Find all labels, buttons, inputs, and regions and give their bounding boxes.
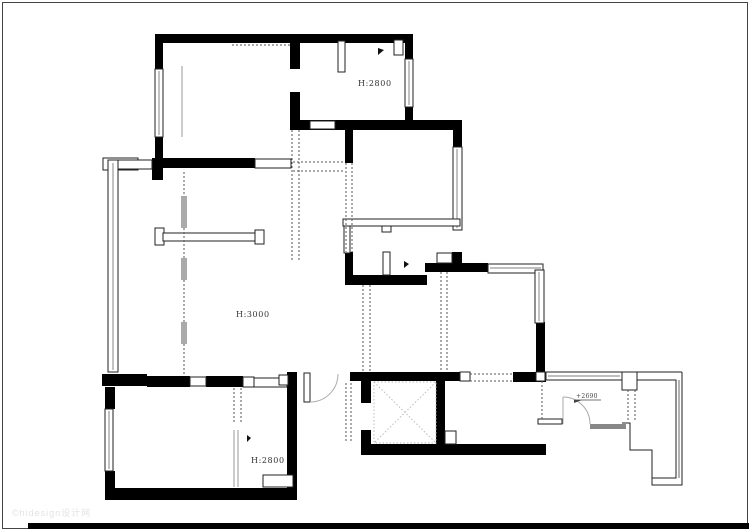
bed2-corner-jamb bbox=[394, 40, 403, 55]
wall-midroom-right bbox=[453, 130, 462, 147]
wall-top bbox=[155, 34, 413, 43]
wall-lift-bottom bbox=[361, 444, 546, 455]
bed3-cabinet bbox=[263, 475, 293, 487]
entry-door-leaf bbox=[304, 373, 310, 402]
wall-bed1-bottom bbox=[155, 158, 255, 168]
balcony-jamb bbox=[536, 372, 545, 381]
wall-bed3-left-b bbox=[105, 471, 115, 489]
railing-b bbox=[590, 424, 626, 429]
wall-living-right bbox=[536, 322, 545, 373]
wall-bed2-right-a bbox=[405, 43, 413, 59]
wall-bed2-right-b bbox=[405, 107, 413, 123]
closet-partition bbox=[163, 233, 262, 241]
wall-bed1-left-a bbox=[155, 43, 163, 69]
watermark-text: ©hidesign设计网 bbox=[12, 507, 91, 518]
balcony-level-text: +2690 bbox=[576, 393, 598, 400]
closet-jamb-right bbox=[255, 230, 264, 244]
title-block-edge bbox=[28, 523, 749, 529]
entry-jamb-left bbox=[279, 375, 288, 385]
opening-living-bottom bbox=[190, 377, 206, 386]
midroom-partition-notch bbox=[382, 226, 391, 232]
removed-seg-2 bbox=[181, 258, 187, 280]
wall-midroom-left bbox=[345, 130, 353, 163]
balcony-band-link bbox=[115, 160, 152, 169]
bed3-door-jamb bbox=[243, 377, 254, 387]
wall-bath-bottom bbox=[345, 275, 427, 285]
label-bed2-height: H:2800 bbox=[358, 79, 392, 88]
label-bed3-height: H:2800 bbox=[251, 456, 285, 465]
removed-seg-3 bbox=[181, 322, 187, 344]
bath-jamb-left bbox=[344, 226, 350, 253]
wall-bath-corner bbox=[452, 252, 462, 265]
window-bed2-bottom-inset bbox=[310, 121, 335, 129]
wall-bed2-left-a bbox=[290, 43, 300, 69]
bath-door-jamb bbox=[383, 252, 390, 275]
wall-living-bottom-b bbox=[147, 376, 190, 387]
label-living-height: H:3000 bbox=[236, 310, 270, 319]
lift-sill bbox=[445, 431, 456, 444]
wall-bed3-left-a bbox=[105, 387, 115, 409]
wall-living-bottom-a bbox=[102, 374, 147, 386]
opening-bed1-bottom bbox=[255, 159, 291, 168]
floor-plan-page: +2690 H:2800 H:3000 H:2800 ©hidesign设计网 bbox=[0, 0, 750, 531]
midroom-partition bbox=[343, 219, 460, 226]
wall-lift-right bbox=[436, 378, 445, 450]
bed2-jamb bbox=[338, 41, 345, 72]
bath-door-head bbox=[437, 253, 452, 263]
entry-head-jamb bbox=[460, 372, 470, 381]
balcony-pier bbox=[622, 372, 637, 390]
wall-living-bottom-c bbox=[206, 376, 243, 387]
removed-seg-1 bbox=[181, 196, 187, 228]
wall-lift-left-a bbox=[361, 381, 371, 403]
wall-bed2-left-b bbox=[290, 92, 300, 123]
railing-a bbox=[538, 419, 562, 424]
wall-bed3-bottom bbox=[105, 488, 297, 500]
floor-plan-canvas: +2690 H:2800 H:3000 H:2800 ©hidesign设计网 bbox=[0, 0, 750, 531]
